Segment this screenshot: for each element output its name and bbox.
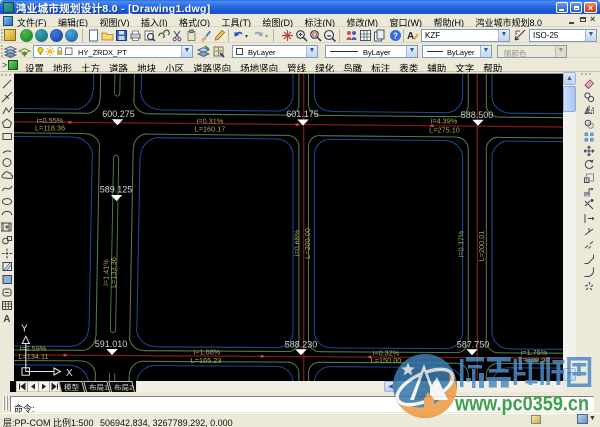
svg-text:L=134.11: L=134.11 (18, 352, 48, 361)
svg-text:i=4.39%: i=4.39% (431, 117, 458, 126)
svg-text:www.pc0359.cn: www.pc0359.cn (454, 393, 589, 416)
svg-text:588.230: 588.230 (285, 340, 318, 350)
svg-text:i=0.37%: i=0.37% (456, 230, 465, 257)
svg-text:?: ? (393, 32, 398, 41)
svg-text:601.175: 601.175 (286, 109, 319, 119)
svg-text:L=200.00: L=200.00 (303, 228, 312, 259)
svg-text:X: X (66, 368, 73, 379)
svg-text:L=200.01: L=200.01 (477, 231, 486, 262)
svg-text:L=165.23: L=165.23 (191, 356, 222, 365)
svg-text:A: A (407, 31, 414, 42)
svg-text:L=160.17: L=160.17 (195, 125, 226, 134)
svg-text:600.275: 600.275 (102, 109, 135, 119)
svg-text:591.010: 591.010 (95, 339, 128, 349)
svg-text:588.500: 588.500 (461, 110, 494, 120)
svg-text:L=133.36: L=133.36 (109, 257, 118, 288)
svg-text:L=118.36: L=118.36 (35, 124, 65, 133)
svg-text:A: A (3, 314, 10, 324)
svg-text:587.750: 587.750 (457, 340, 490, 350)
svg-text:589.125: 589.125 (100, 185, 133, 195)
svg-text:L=275.10: L=275.10 (429, 126, 460, 135)
svg-text:Y: Y (21, 324, 28, 335)
svg-text:i=0.68%: i=0.68% (292, 229, 301, 256)
